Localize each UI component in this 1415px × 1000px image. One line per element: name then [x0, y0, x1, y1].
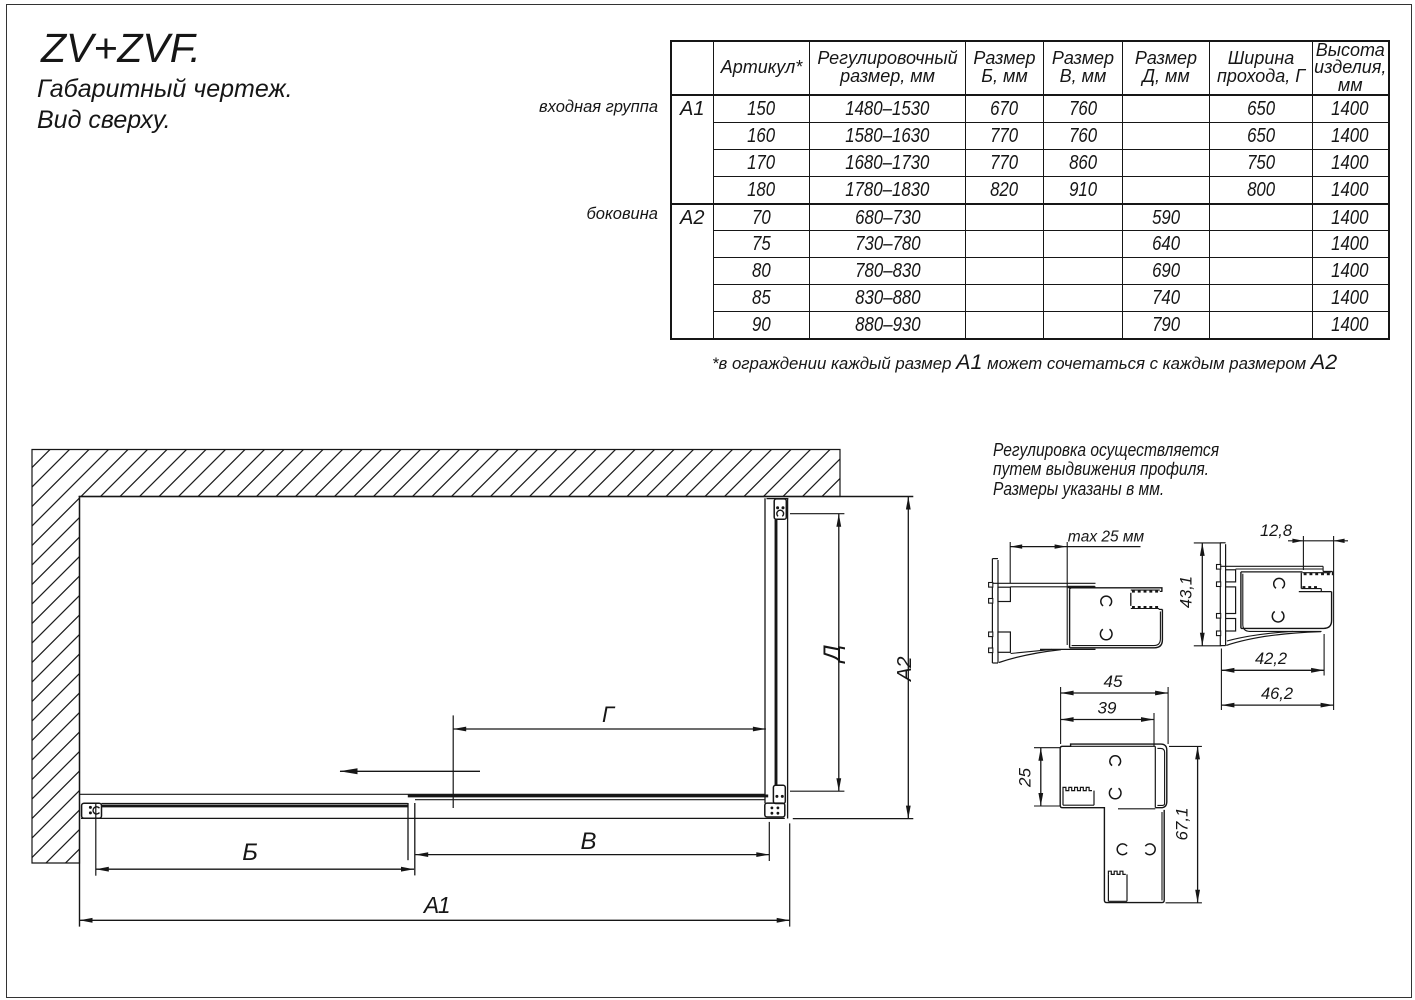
svg-text:Г: Г	[602, 702, 616, 727]
svg-text:12,8: 12,8	[1260, 522, 1293, 540]
svg-text:67,1: 67,1	[1173, 807, 1192, 840]
svg-text:Б: Б	[242, 839, 258, 866]
svg-text:В: В	[580, 828, 596, 855]
svg-text:43,1: 43,1	[1178, 576, 1196, 608]
svg-text:42,2: 42,2	[1255, 650, 1287, 668]
svg-text:А1: А1	[422, 892, 449, 918]
svg-text:39: 39	[1098, 699, 1117, 718]
svg-text:Д: Д	[819, 644, 846, 664]
svg-text:А2: А2	[893, 656, 916, 683]
svg-text:max 25 мм: max 25 мм	[1068, 529, 1145, 546]
svg-text:46,2: 46,2	[1261, 685, 1293, 703]
svg-text:45: 45	[1104, 672, 1123, 691]
svg-text:25: 25	[1016, 768, 1035, 788]
